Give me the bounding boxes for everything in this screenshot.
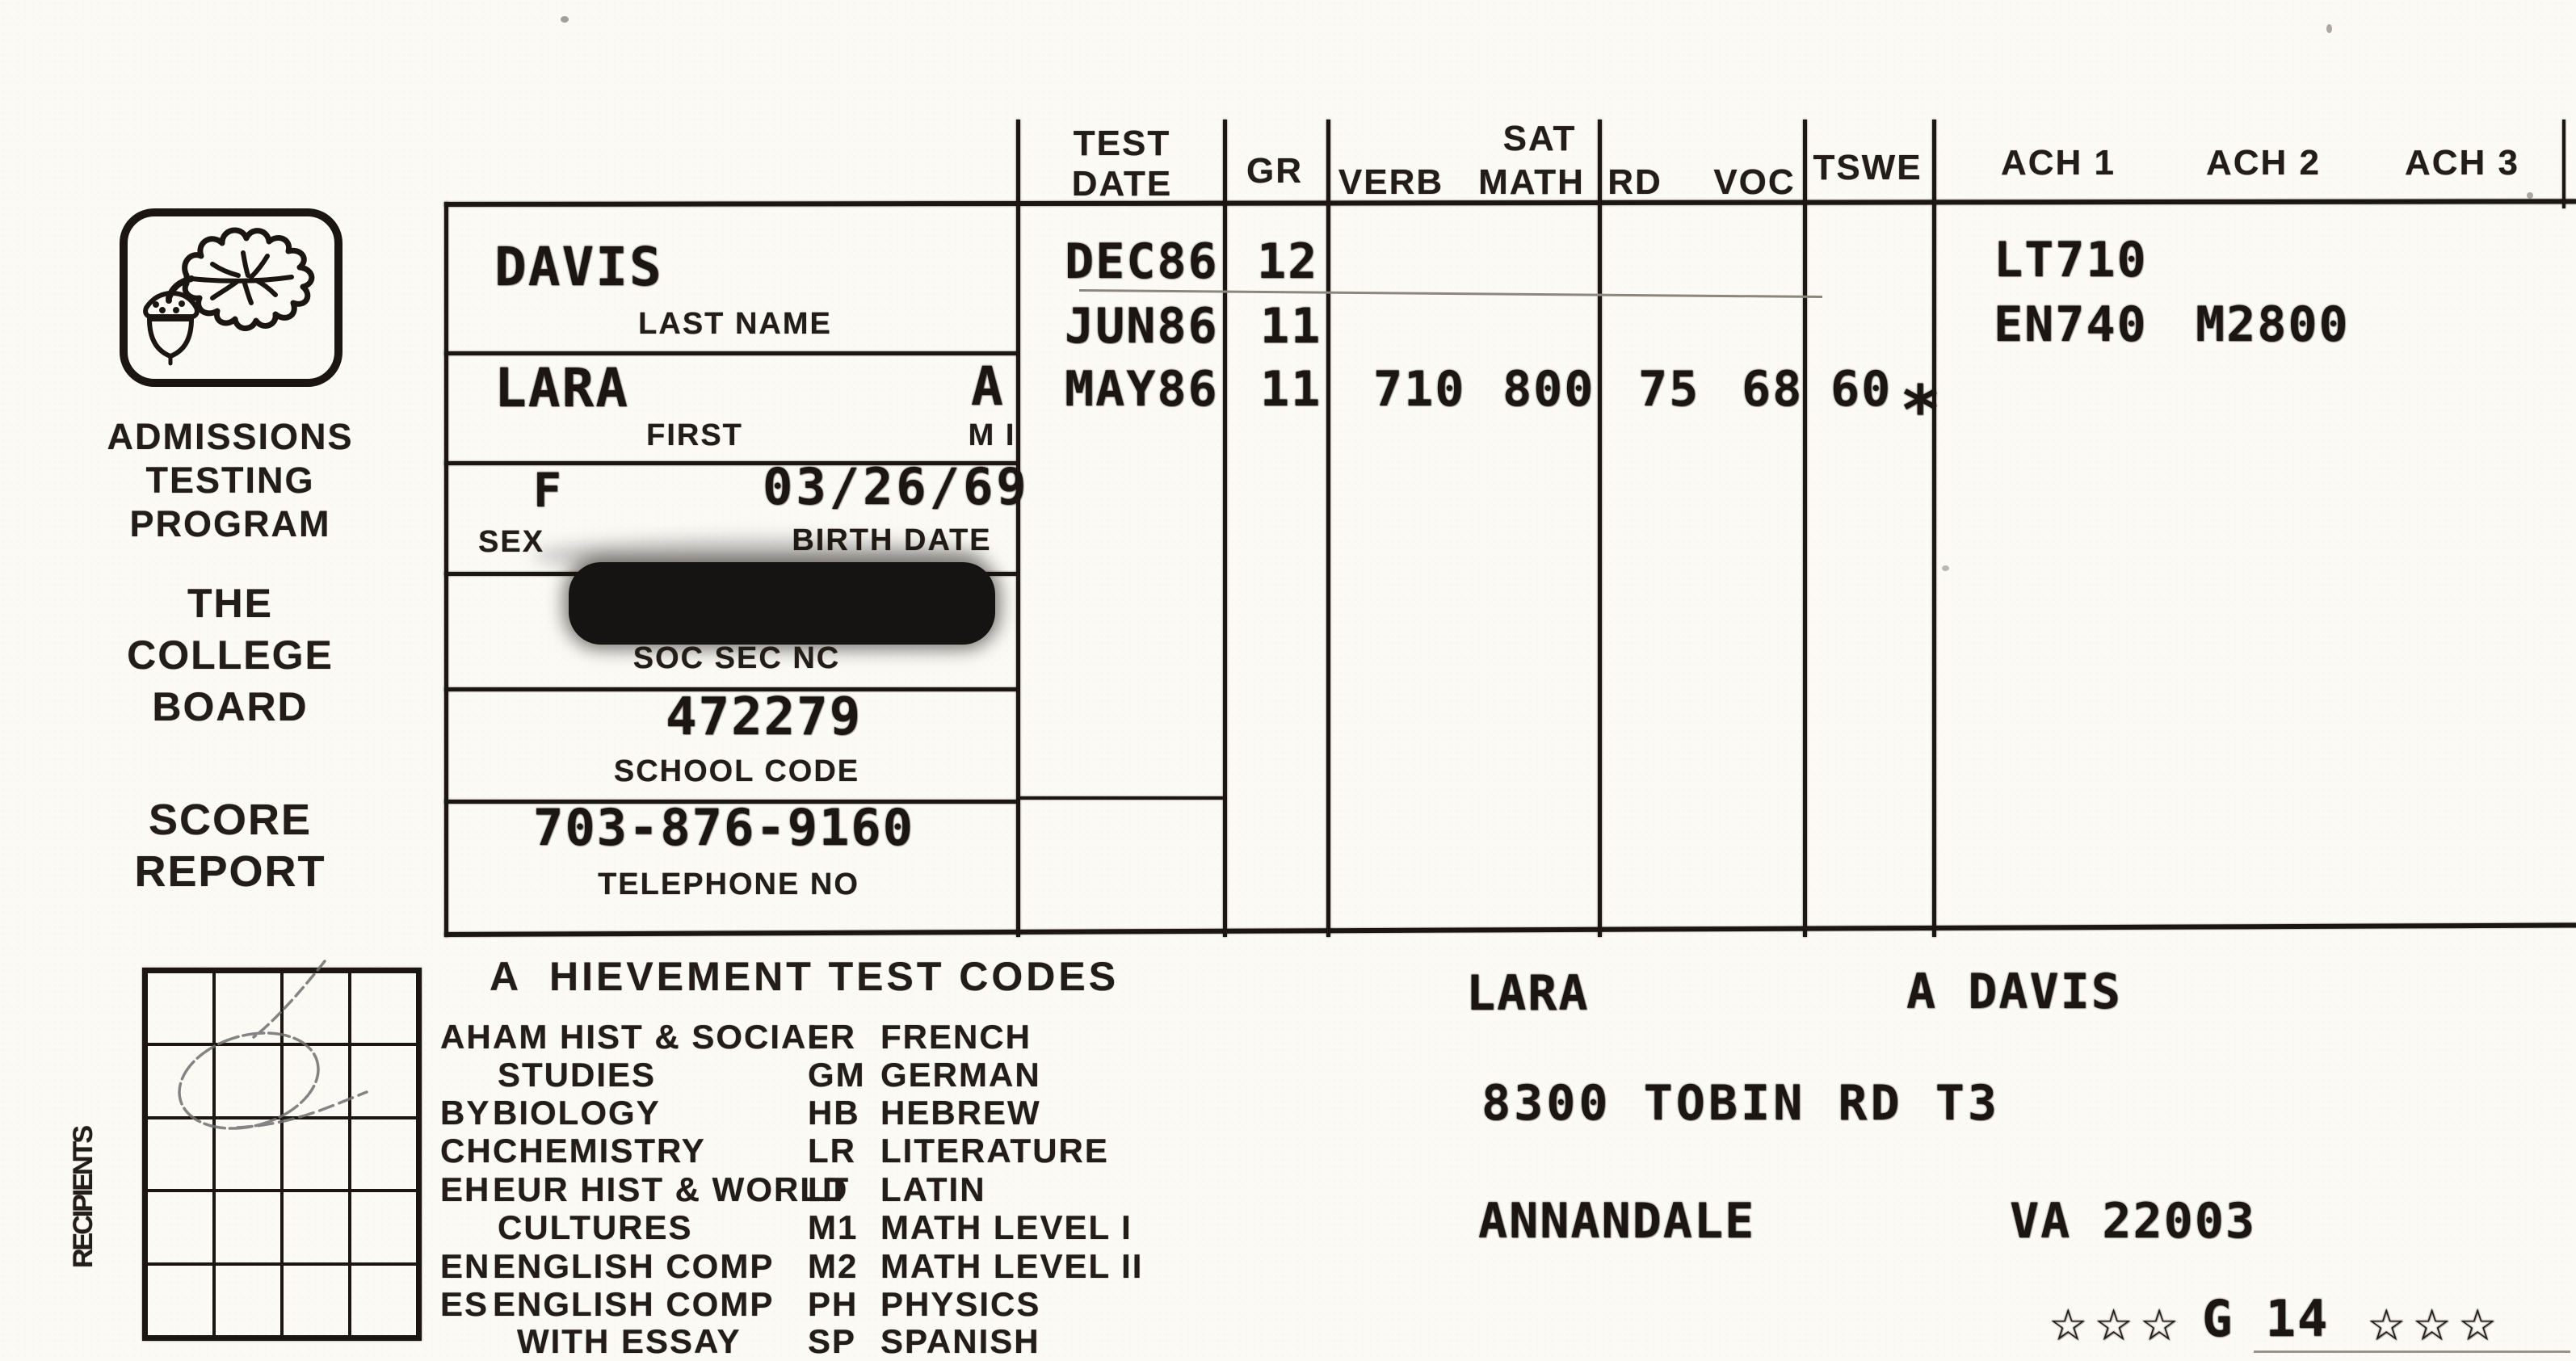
code-name: SPANISH [880,1325,1040,1359]
scan-speck [561,16,569,23]
brand-board: BOARD [152,687,308,727]
codes-title: A HIEVEMENT TEST CODES [490,956,1119,997]
code-abbr: EN [440,1250,490,1283]
telephone-value: 703-876-9160 [533,803,914,853]
code-abbr: BY [440,1096,490,1130]
code-abbr: GM [808,1058,866,1092]
score-sat-math: 800 [1502,365,1595,414]
mailing-first-name: LARA [1466,969,1590,1018]
col-header-test: TEST [1074,126,1170,162]
score-row-grade: 11 [1260,365,1322,414]
code-abbr: ES [440,1287,489,1321]
brand-score: SCORE [149,798,312,842]
brand-the: THE [187,583,273,624]
rule-school-row-extension [1018,796,1225,800]
rule-table-bottom [444,922,2576,937]
rule-col-ach-left [1932,120,1936,937]
code-name: BIOLOGY [493,1096,661,1130]
col-header-ach2: ACH 2 [2206,145,2321,181]
mailing-stars-right-icon: ☆☆☆ [2367,1304,2503,1347]
recipients-label: RECIPIENTS [69,1034,97,1268]
score-row-ach1: EN740 [1994,300,2148,349]
recipients-grid-cell [214,1264,282,1337]
code-abbr: LR [808,1134,856,1168]
sex-value: F [533,467,563,514]
pen-scribble-mark [142,945,417,1187]
middle-initial-label: M I [969,420,1016,451]
rule-col-gr-left [1223,120,1227,937]
code-abbr: SP [808,1325,856,1359]
code-name: CULTURES [498,1211,693,1245]
code-name: LATIN [880,1173,986,1207]
code-name: MATH LEVEL II [880,1250,1143,1283]
score-row-date: DEC86 [1065,237,1219,286]
score-row-date: MAY86 [1065,365,1219,414]
first-name-value: LARA [494,362,629,415]
col-header-ach1: ACH 1 [2001,145,2116,181]
code-name: FRENCH [880,1020,1032,1054]
score-row-date: JUN86 [1065,302,1219,351]
rule-right-edge [2562,120,2565,208]
score-row-ach2: M2800 [2196,300,2350,349]
code-abbr: M1 [808,1211,858,1245]
recipients-grid-cell [146,1191,214,1263]
col-header-rd: RD [1607,165,1662,200]
telephone-label: TELEPHONE NO [598,869,859,900]
code-name: STUDIES [498,1058,656,1092]
code-abbr: M2 [808,1250,858,1283]
code-name: ENGLISH COMP [493,1250,774,1283]
soc-sec-label: SOC SEC NC [633,643,840,674]
scan-artifact-bottom-dash [2254,1350,2570,1353]
recipients-grid-cell [146,1264,214,1337]
code-name: HEBREW [880,1096,1041,1130]
code-name: AM HIST & SOCIAL [493,1020,830,1054]
mailing-street: 8300 TOBIN RD T3 [1481,1079,2000,1128]
brand-program: PROGRAM [130,506,331,542]
col-header-gr: GR [1246,153,1303,189]
score-row-grade: 12 [1257,237,1318,286]
brand-college: COLLEGE [127,635,334,675]
code-name: ENGLISH COMP [493,1287,774,1321]
mailing-city: ANNANDALE [1478,1197,1755,1245]
first-name-label: FIRST [646,420,743,451]
rule-col-tswe-left [1803,120,1807,937]
code-abbr: LT [808,1173,850,1207]
code-name: GERMAN [880,1058,1041,1092]
scan-speck [2527,192,2533,199]
col-header-verb: VERB [1338,165,1443,200]
recipients-grid-cell [350,1264,418,1337]
code-name: PHYSICS [880,1287,1040,1321]
score-tswe: 60 [1830,365,1892,414]
code-name: MATH LEVEL I [880,1211,1133,1245]
school-code-label: SCHOOL CODE [614,756,859,787]
col-header-date: DATE [1072,166,1173,202]
last-name-label: LAST NAME [638,309,832,339]
mailing-rest-name: A DAVIS [1906,968,2122,1016]
rule-col-testdate-left [1016,120,1020,937]
rule-col-rd-left [1598,120,1602,937]
code-abbr: EH [440,1173,490,1207]
col-header-sat: SAT [1503,121,1577,157]
recipients-grid-cell [214,1191,282,1263]
score-report-scan: TEST DATE GR SAT VERB MATH RD VOC TSWE A… [0,0,2576,1361]
code-abbr: CH [440,1134,493,1168]
scan-speck [2326,24,2332,33]
recipients-grid-cell [350,1191,418,1263]
code-abbr: FR [808,1020,856,1054]
score-tswe-star: * [1900,376,1943,444]
code-name: WITH ESSAY [517,1325,742,1359]
code-abbr: AH [440,1020,493,1054]
score-row-grade: 11 [1260,302,1322,351]
rule-row-lastname-bottom [444,351,1018,355]
recipients-grid-cell [282,1264,350,1337]
last-name-value: DAVIS [494,241,663,294]
mailing-state-zip: VA 22003 [2010,1197,2256,1245]
score-voc: 68 [1742,365,1803,414]
col-header-ach3: ACH 3 [2405,145,2519,181]
col-header-math: MATH [1478,165,1585,200]
school-code-value: 472279 [666,691,862,743]
code-name: CHEMISTRY [493,1134,706,1168]
code-name: LITERATURE [880,1134,1109,1168]
score-sat-verbal: 710 [1373,365,1465,414]
code-name: EUR HIST & WORLD [493,1173,848,1207]
score-rd: 75 [1638,365,1700,414]
col-header-tswe: TSWE [1813,150,1922,186]
code-abbr: PH [808,1287,858,1321]
scan-artifact-line [1079,289,1822,298]
mailing-sort-code: G 14 [2202,1294,2329,1344]
code-abbr: HB [808,1096,860,1130]
mailing-stars-left-icon: ☆☆☆ [2049,1304,2185,1347]
middle-initial-value: A [971,360,1005,414]
rule-form-left-border [444,202,448,937]
birth-date-value: 03/26/69 [763,462,1030,512]
recipients-grid-cell [282,1191,350,1263]
col-header-voc: VOC [1713,165,1795,200]
brand-testing: TESTING [145,462,314,498]
rule-col-sat-left [1326,120,1330,937]
ssn-redaction-bar [569,562,995,645]
brand-report: REPORT [134,850,326,893]
brand-admissions: ADMISSIONS [107,418,353,455]
scan-speck [1942,565,1949,571]
score-row-ach1: LT710 [1994,236,2148,284]
oak-leaf-acorn-logo-icon [117,206,345,389]
